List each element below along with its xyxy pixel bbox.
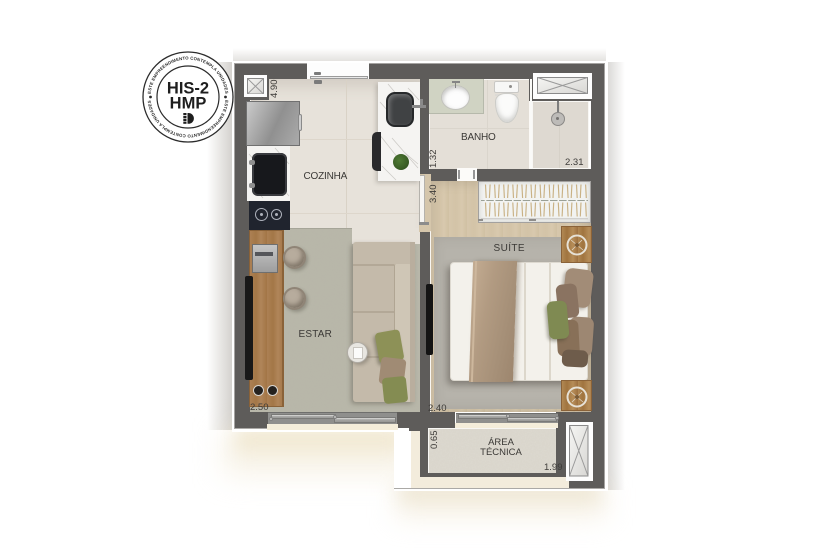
svg-text:HMP: HMP [170,95,207,113]
